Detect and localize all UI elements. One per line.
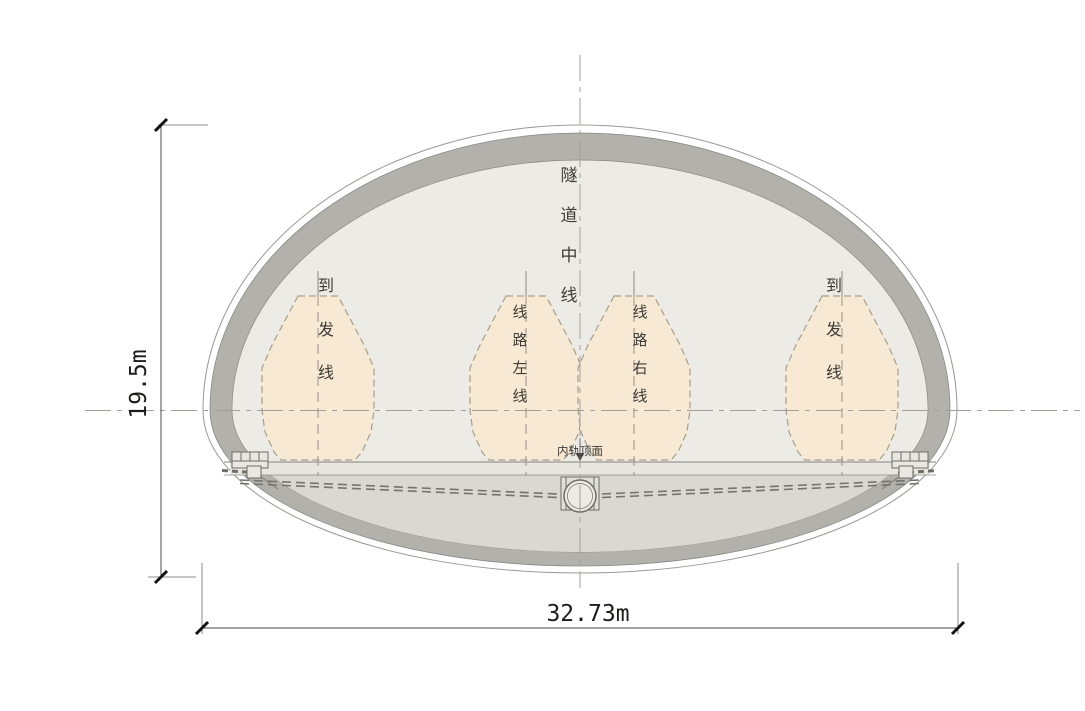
label-char: 隧 <box>561 166 578 186</box>
drawing-canvas: 隧 道 中 线 到 发 线 到 发 线 线 路 左 线 线 路 右 线 内轨顶面… <box>0 0 1085 711</box>
label-char: 线 <box>512 387 527 405</box>
label-char: 发 <box>826 320 842 339</box>
label-char: 中 <box>561 246 578 266</box>
tunnel-cross-section-drawing: 隧 道 中 线 到 发 线 到 发 线 线 路 左 线 线 路 右 线 内轨顶面… <box>0 0 1085 711</box>
label-char: 线 <box>826 363 842 382</box>
label-char: 道 <box>561 206 578 226</box>
label-char: 线 <box>632 387 647 405</box>
label-char: 路 <box>632 331 647 349</box>
label-char: 线 <box>512 303 527 321</box>
label-char: 到 <box>826 276 842 295</box>
label-siding-left: 到 发 线 <box>318 276 334 382</box>
label-siding-right: 到 发 线 <box>826 276 842 382</box>
label-char: 路 <box>512 331 527 349</box>
label-char: 线 <box>632 303 647 321</box>
label-char: 右 <box>632 359 647 377</box>
dimension-height: 19.5m <box>126 119 208 583</box>
label-char: 到 <box>318 276 334 295</box>
label-char: 线 <box>561 286 578 306</box>
label-char: 左 <box>512 359 527 377</box>
label-char: 线 <box>318 363 334 382</box>
dimension-height-value: 19.5m <box>126 349 152 418</box>
label-rail-top-surface: 内轨顶面 <box>557 444 603 458</box>
label-char: 发 <box>318 320 334 339</box>
dimension-width-value: 32.73m <box>546 601 629 627</box>
